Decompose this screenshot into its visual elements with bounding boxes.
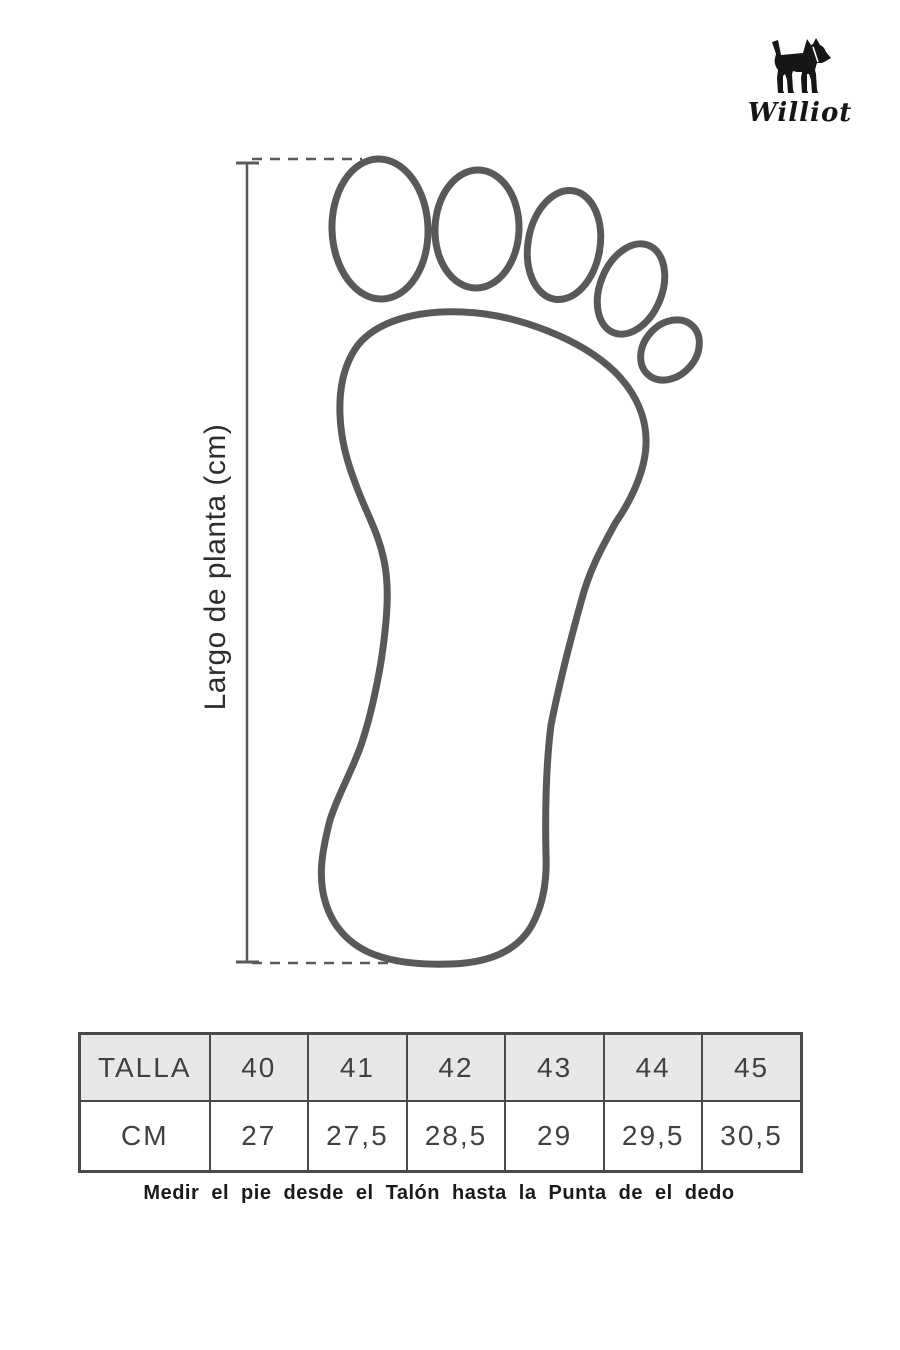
second-toe-ellipse bbox=[433, 169, 521, 290]
table-row-cm: CM 27 27,5 28,5 29 29,5 30,5 bbox=[80, 1101, 802, 1172]
axis-label: Largo de planta (cm) bbox=[199, 424, 233, 711]
table-row-talla: TALLA 40 41 42 43 44 45 bbox=[80, 1034, 802, 1102]
cm-row-label: CM bbox=[80, 1101, 210, 1172]
size-row-label: TALLA bbox=[80, 1034, 210, 1102]
size-header-cell: 44 bbox=[604, 1034, 703, 1102]
size-header-cell: 42 bbox=[407, 1034, 506, 1102]
size-guide-page: Williot Largo de planta (cm) bbox=[0, 0, 900, 1350]
size-header-cell: 40 bbox=[210, 1034, 309, 1102]
sole-outline bbox=[321, 312, 646, 964]
cm-value-cell: 30,5 bbox=[702, 1101, 801, 1172]
cm-value-cell: 27 bbox=[210, 1101, 309, 1172]
pinky-toe-ellipse bbox=[629, 308, 712, 392]
cm-value-cell: 29 bbox=[505, 1101, 604, 1172]
size-header-cell: 45 bbox=[702, 1034, 801, 1102]
cm-value-cell: 27,5 bbox=[308, 1101, 407, 1172]
big-toe-ellipse bbox=[330, 157, 431, 300]
measure-instruction: Medir el pie desde el Talón hasta la Pun… bbox=[78, 1182, 800, 1205]
foot-outline-diagram bbox=[0, 0, 900, 1000]
cm-value-cell: 29,5 bbox=[604, 1101, 703, 1172]
size-header-cell: 41 bbox=[308, 1034, 407, 1102]
size-header-cell: 43 bbox=[505, 1034, 604, 1102]
size-table: TALLA 40 41 42 43 44 45 CM 27 27,5 28,5 … bbox=[78, 1032, 803, 1173]
cm-value-cell: 28,5 bbox=[407, 1101, 506, 1172]
